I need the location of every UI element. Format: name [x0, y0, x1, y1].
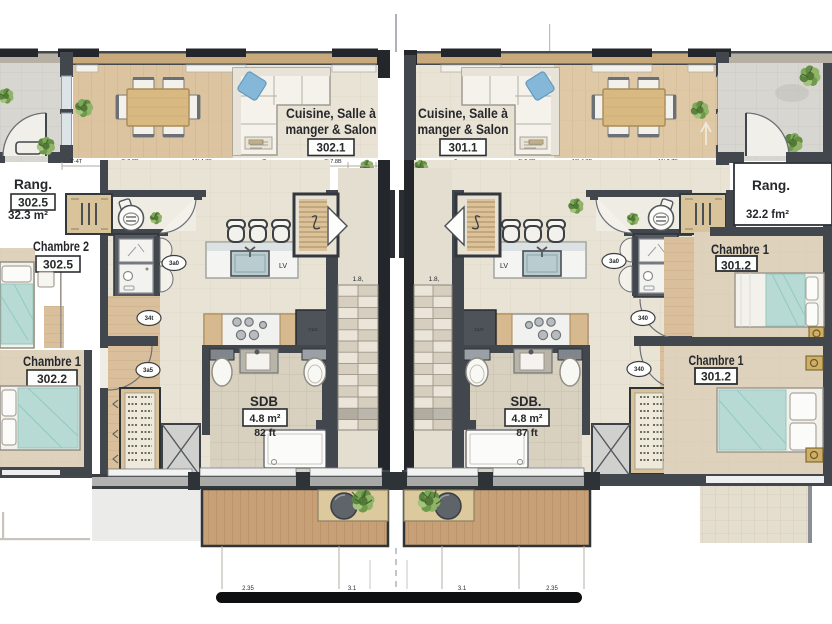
- svg-text:Chambre 1: Chambre 1: [23, 354, 81, 369]
- svg-text:302.1: 302.1: [317, 143, 347, 155]
- svg-text:340: 340: [638, 316, 649, 322]
- svg-text:87 ft: 87 ft: [516, 427, 538, 439]
- svg-text:Cuisine, Salle à: Cuisine, Salle à: [418, 106, 508, 121]
- svg-text:302.2: 302.2: [37, 374, 67, 386]
- svg-text:SDB: SDB: [250, 393, 278, 409]
- svg-text:3.1: 3.1: [458, 586, 467, 592]
- svg-text:4.8 m²: 4.8 m²: [512, 413, 543, 425]
- svg-text:82 ft: 82 ft: [254, 427, 276, 439]
- svg-text:302.5: 302.5: [18, 198, 49, 210]
- svg-text:Chambre 2: Chambre 2: [33, 239, 89, 254]
- svg-text:302.5: 302.5: [43, 260, 74, 272]
- svg-text:1.8,: 1.8,: [429, 276, 440, 283]
- svg-text:3a5: 3a5: [143, 368, 154, 374]
- svg-text:3.1: 3.1: [348, 586, 357, 592]
- svg-text:LV: LV: [279, 263, 287, 270]
- svg-text:manger & Salon: manger & Salon: [418, 122, 509, 137]
- svg-text:SDB.: SDB.: [511, 393, 542, 409]
- svg-text:CLO: CLO: [308, 327, 318, 332]
- svg-text:Cuisine, Salle à: Cuisine, Salle à: [286, 106, 376, 121]
- svg-text:Rang.: Rang.: [14, 176, 52, 192]
- svg-text:340: 340: [634, 367, 645, 373]
- svg-text:LV: LV: [500, 263, 508, 270]
- svg-text:2.35: 2.35: [546, 586, 558, 592]
- svg-text:7'-4T: 7'-4T: [70, 159, 83, 165]
- svg-text:34t: 34t: [145, 316, 154, 322]
- svg-text:301.2: 301.2: [701, 370, 731, 384]
- svg-text:301.2: 301.2: [721, 259, 751, 273]
- svg-text:CLO: CLO: [474, 327, 484, 332]
- svg-text:Chambre 1: Chambre 1: [689, 353, 744, 368]
- svg-text:3a0: 3a0: [169, 261, 180, 267]
- svg-text:32.2 fm²: 32.2 fm²: [746, 209, 789, 221]
- svg-text:Chambre 1: Chambre 1: [711, 242, 769, 257]
- svg-text:2.35: 2.35: [242, 586, 254, 592]
- svg-text:32.3 m²: 32.3 m²: [8, 210, 48, 222]
- svg-text:1.8,: 1.8,: [353, 276, 364, 283]
- svg-text:manger & Salon: manger & Salon: [286, 122, 377, 137]
- svg-text:3a0: 3a0: [609, 259, 620, 265]
- svg-text:4.8 m²: 4.8 m²: [250, 413, 281, 425]
- svg-text:301.1: 301.1: [449, 143, 479, 155]
- svg-text:Rang.: Rang.: [752, 177, 790, 193]
